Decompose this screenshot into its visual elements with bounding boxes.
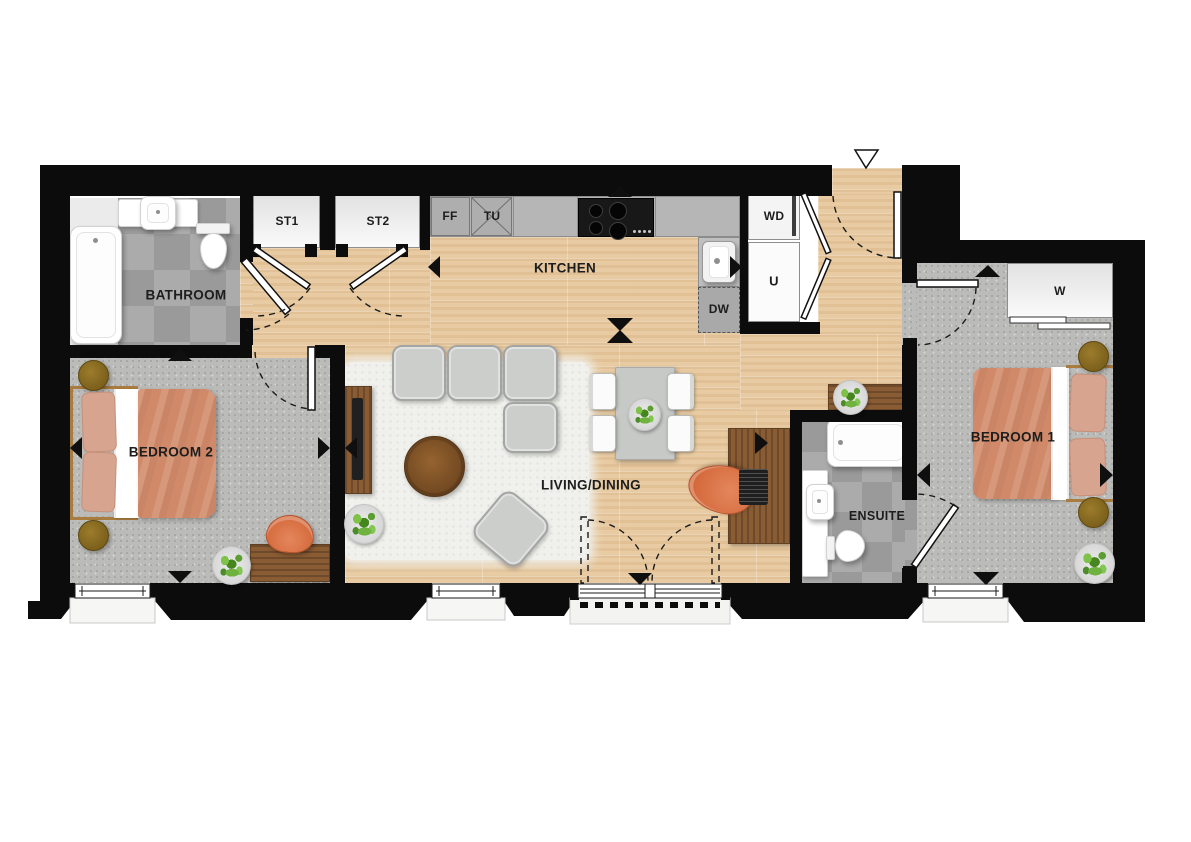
floorplan-canvas: BATHROOM KITCHEN LIVING/DINING BEDROOM 1… <box>0 0 1191 842</box>
window-bedroom1 <box>928 584 1003 598</box>
marker-living-right <box>755 432 768 454</box>
kitchen-label: KITCHEN <box>534 261 596 276</box>
marker-kitchen-top <box>608 186 632 197</box>
bedroom1-label: BEDROOM 1 <box>971 430 1055 445</box>
bathroom-label: BATHROOM <box>146 288 227 303</box>
closet-bifold-top <box>801 193 831 254</box>
marker-bedroom1-right <box>1100 463 1113 487</box>
entry-door-swing <box>833 196 899 258</box>
tu-label: TU <box>484 209 501 223</box>
marker-kitchen-hourglass-bottom <box>607 330 633 343</box>
wd-label: WD <box>764 209 785 223</box>
marker-bedroom2-right <box>318 437 330 459</box>
st2-door-leaf <box>350 246 408 289</box>
closet-bifold-bottom <box>801 258 831 319</box>
entry-door-leaf <box>894 192 901 258</box>
marker-bedroom2-left <box>70 437 82 459</box>
bedroom2-door-swing <box>255 352 312 409</box>
marker-bedroom1-top <box>975 265 1000 277</box>
marker-kitchen-hourglass-top <box>607 318 633 331</box>
st1-label: ST1 <box>276 214 299 228</box>
bedroom2-label: BEDROOM 2 <box>129 445 213 460</box>
ff-label: FF <box>442 209 457 223</box>
measure-markers <box>70 186 1113 585</box>
bedroom2-door-leaf <box>308 347 315 410</box>
marker-bedroom1-bottom <box>973 572 999 585</box>
window-sill-bedroom2 <box>70 598 155 623</box>
marker-bathroom-bottom <box>168 349 192 361</box>
window-sill-living <box>427 598 505 620</box>
u-label: U <box>769 274 779 289</box>
bedroom1-door-leaf <box>917 280 978 287</box>
entry-marker <box>855 150 878 168</box>
window-sill-bedroom1 <box>923 598 1008 622</box>
st2-door-swing <box>350 288 404 316</box>
living-dining-label: LIVING/DINING <box>541 478 641 493</box>
plan-symbols <box>0 0 1191 842</box>
balcony-deck <box>570 598 730 624</box>
ensuite-door-leaf <box>912 504 959 567</box>
w-label: W <box>1054 284 1066 298</box>
marker-bedroom1-left <box>917 463 930 487</box>
marker-bedroom2-bottom <box>168 571 192 583</box>
marker-living-left <box>345 437 357 459</box>
marker-kitchen-left <box>428 256 440 278</box>
dw-label: DW <box>709 302 730 316</box>
window-bedroom2 <box>75 584 150 598</box>
st2-label: ST2 <box>367 214 390 228</box>
ensuite-label: ENSUITE <box>849 509 905 523</box>
ensuite-door-swing <box>918 494 955 506</box>
window-living <box>432 584 500 598</box>
marker-kitchen-right <box>730 256 742 278</box>
french-doors <box>570 517 730 600</box>
bedroom1-door-swing <box>918 288 976 345</box>
door-swings <box>246 196 976 506</box>
wardrobe-rails <box>1010 317 1110 329</box>
